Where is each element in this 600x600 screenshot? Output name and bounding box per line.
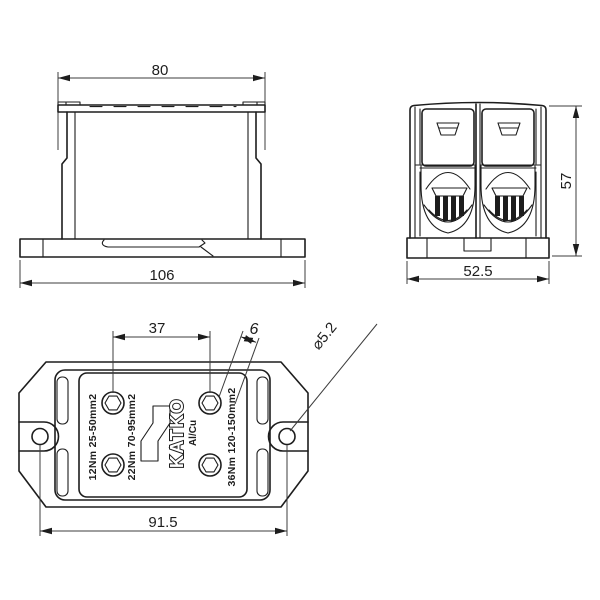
side-body bbox=[410, 103, 546, 239]
dim-hole-spacing: 91.5 bbox=[40, 445, 287, 536]
dim-screw-spacing: 37 bbox=[113, 320, 210, 393]
dim-label-hole-spacing: 91.5 bbox=[148, 514, 177, 531]
left-terminal bbox=[421, 166, 475, 233]
mounting-ear-right bbox=[269, 422, 309, 451]
base-notch bbox=[464, 238, 491, 251]
front-view: 80 106 bbox=[20, 62, 305, 288]
top-view: 12Nm 25-50mm2 22Nm 70-95mm2 36Nm 120-150… bbox=[19, 319, 377, 536]
katko-logo-icon bbox=[141, 406, 170, 461]
dim-base-width: 106 bbox=[20, 260, 305, 288]
side-base bbox=[407, 238, 549, 258]
torque-label-mid: 22Nm 70-95mm2 bbox=[126, 394, 138, 481]
dim-depth: 52.5 bbox=[407, 261, 549, 284]
torque-label-left: 12Nm 25-50mm2 bbox=[87, 394, 99, 481]
screw-bottom-left bbox=[102, 454, 124, 476]
right-terminal bbox=[481, 166, 535, 233]
side-view: 57 52.5 bbox=[407, 103, 582, 285]
dim-hole-diameter: ⌀5.2 bbox=[290, 319, 377, 431]
right-wall bbox=[256, 112, 261, 239]
left-cover bbox=[422, 109, 474, 166]
dim-label-depth: 52.5 bbox=[463, 263, 492, 280]
torque-label-right: 36Nm 120-150mm2 bbox=[226, 387, 238, 486]
screw-top-right bbox=[199, 392, 221, 414]
screw-bottom-right bbox=[199, 454, 221, 476]
right-cover bbox=[482, 109, 534, 166]
top-outline bbox=[19, 362, 308, 507]
dim-label-screw-spacing: 37 bbox=[149, 320, 166, 337]
din-base bbox=[20, 239, 305, 257]
dim-top-width: 80 bbox=[58, 62, 265, 150]
brand-text: KATKO bbox=[167, 398, 187, 468]
dim-label-base-width: 106 bbox=[149, 267, 174, 284]
right-slot bbox=[498, 123, 520, 135]
mounting-hole-right bbox=[279, 429, 295, 445]
dim-label-hex: 6 bbox=[250, 321, 259, 338]
mounting-ear-left bbox=[19, 422, 59, 451]
left-slot bbox=[437, 123, 459, 135]
lid bbox=[58, 102, 265, 112]
dim-label-hole-dia: ⌀5.2 bbox=[308, 319, 340, 353]
terminal-screws bbox=[102, 392, 221, 476]
screw-top-left bbox=[102, 392, 124, 414]
dim-label-height: 57 bbox=[558, 173, 575, 190]
technical-drawing-page: 80 106 bbox=[0, 0, 600, 600]
terminal-block-drawing: 80 106 bbox=[0, 0, 600, 600]
dim-label-top-width: 80 bbox=[152, 62, 169, 79]
left-wall bbox=[62, 112, 67, 239]
terminal-panel bbox=[79, 373, 247, 497]
din-rail-notch bbox=[102, 240, 213, 256]
mounting-hole-left bbox=[32, 429, 48, 445]
dim-height: 57 bbox=[549, 106, 582, 256]
material-text: Al/Cu bbox=[188, 420, 199, 446]
